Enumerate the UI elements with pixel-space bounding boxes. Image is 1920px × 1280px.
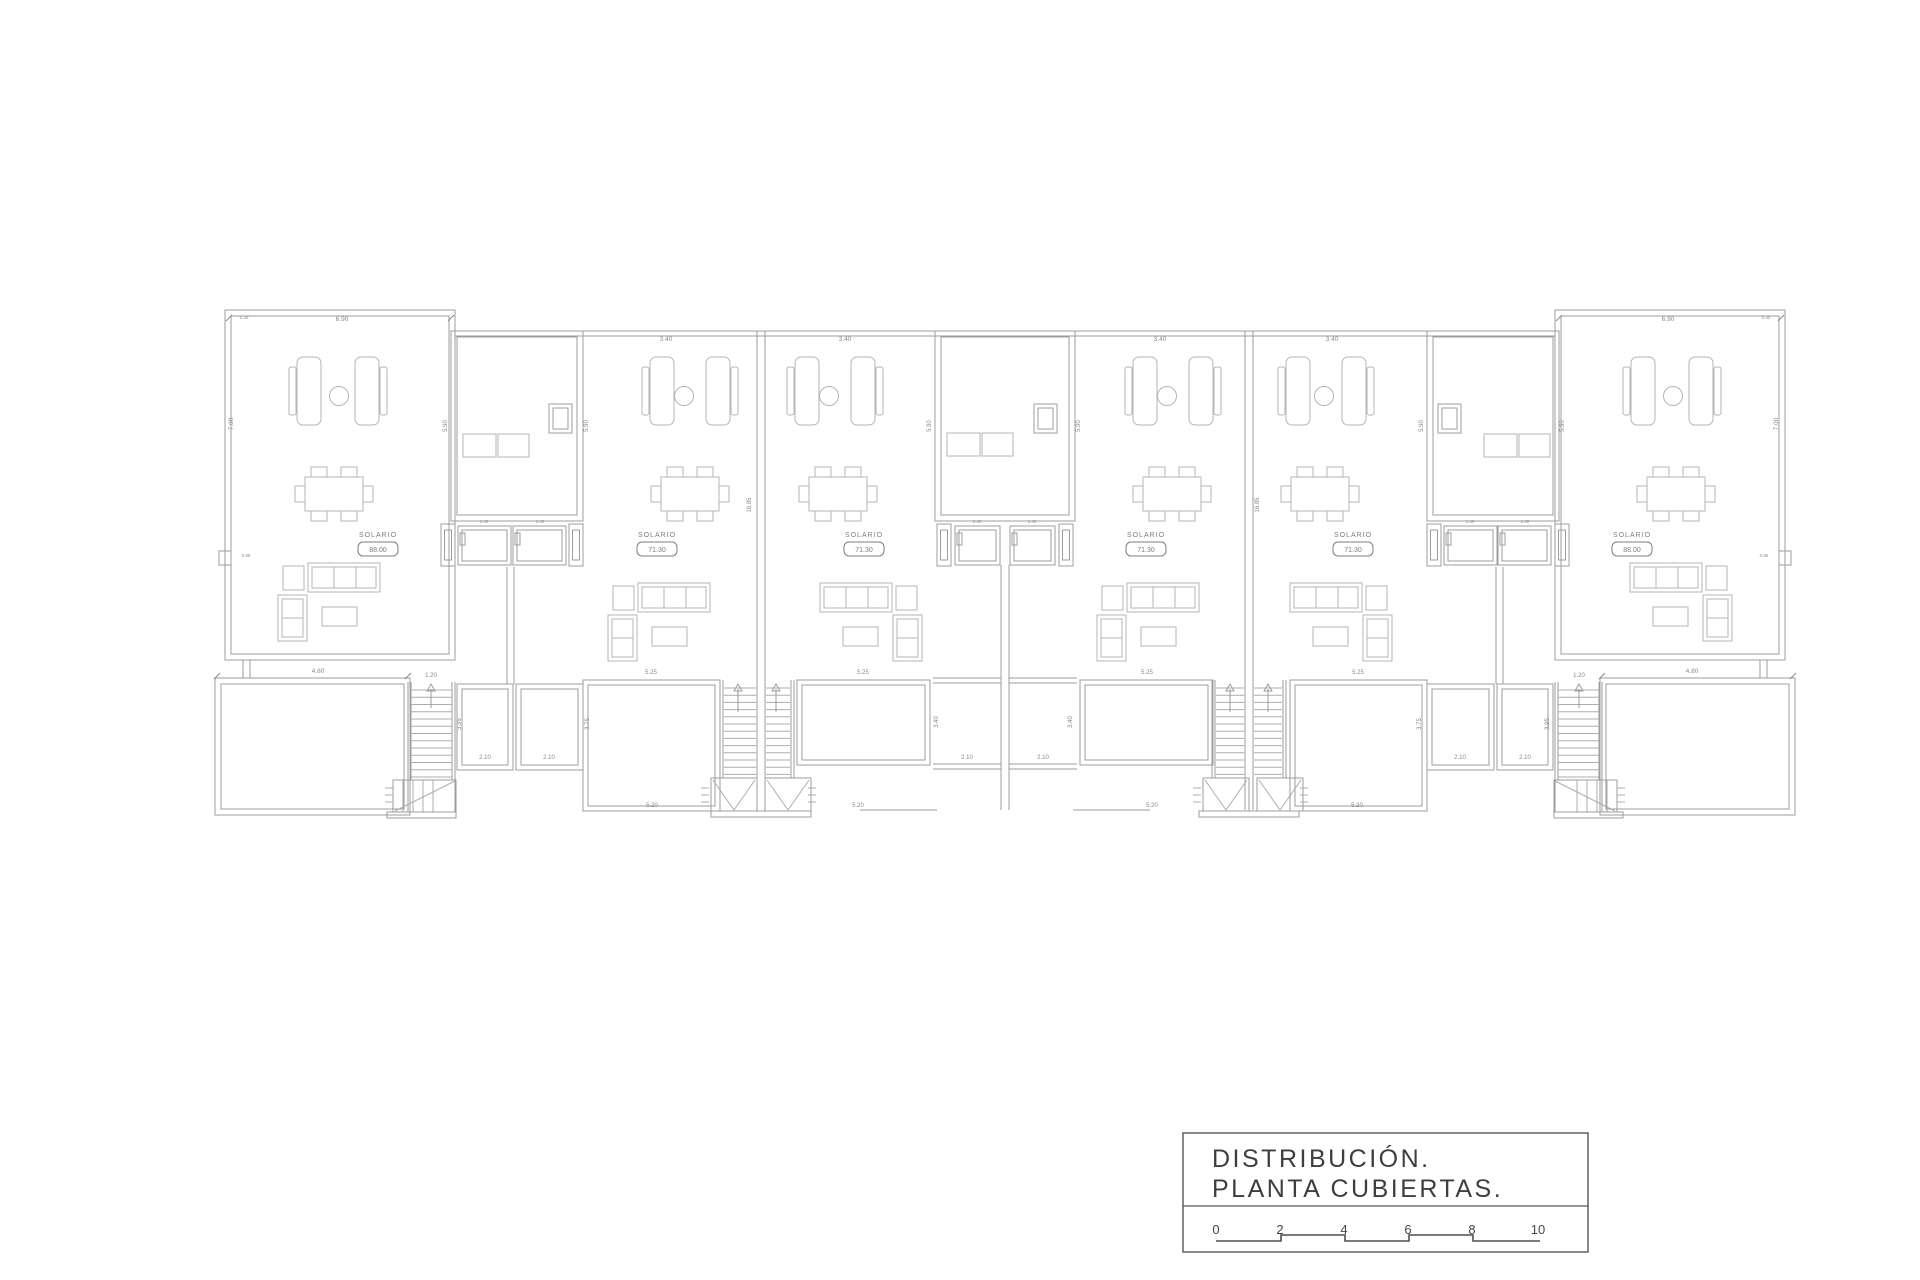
area-value: 71.30 <box>855 547 873 554</box>
dining-set <box>1133 467 1211 521</box>
lounger-back <box>1623 367 1630 415</box>
ottoman <box>896 586 917 610</box>
dim-label: 16.85 <box>1255 497 1261 513</box>
chair <box>1149 511 1165 521</box>
double-wall-outer <box>1427 331 1559 521</box>
double-wall-inner <box>1295 685 1422 806</box>
unit-c-solarium: 3.40SOLARIO71.30 <box>787 336 922 661</box>
chimney-planter <box>937 524 951 566</box>
solario-label: SOLARIO71.30 <box>1333 532 1373 556</box>
stair-landing <box>1203 778 1249 811</box>
ottoman <box>283 566 304 590</box>
dim-label: 0.30 <box>1762 315 1771 320</box>
dim-label: 2.10 <box>1454 755 1466 761</box>
stair-diagonal <box>734 780 755 810</box>
sun-lounger <box>1342 357 1374 425</box>
lounger-back <box>1714 367 1721 415</box>
scale-tick-label: 0 <box>1212 1222 1219 1237</box>
chair <box>815 467 831 477</box>
chair <box>1683 467 1699 477</box>
dim-label: 3.95 <box>1545 718 1551 730</box>
dining-table <box>1143 477 1201 511</box>
skylight-box <box>1438 404 1461 433</box>
coffee-table <box>1653 607 1688 626</box>
stair-base <box>711 811 811 817</box>
center-room: 1.401.405.905.90 <box>927 331 1082 566</box>
chair <box>295 486 305 502</box>
lounger-back <box>642 367 649 415</box>
dining-table <box>1647 477 1705 511</box>
chair <box>697 511 713 521</box>
dim-label: 5.25 <box>645 670 657 676</box>
dim-label: 2.10 <box>961 755 973 761</box>
solario-label: SOLARIO71.30 <box>1126 532 1166 556</box>
double-wall-outer <box>215 678 410 815</box>
dim-label: 3.40 <box>1068 716 1074 728</box>
unit-b-solarium: 3.40SOLARIO71.30 <box>608 336 738 661</box>
double-wall-inner <box>521 689 578 765</box>
stair-diagonal <box>1205 780 1226 810</box>
chair <box>1327 467 1343 477</box>
lounger-back <box>787 367 794 415</box>
table-circle <box>675 387 694 406</box>
lounger-body <box>1133 357 1157 425</box>
dim-label: 1.40 <box>1028 519 1037 524</box>
area-value: 71.30 <box>1344 547 1362 554</box>
table-circle <box>1158 387 1177 406</box>
chimney-planter <box>1555 524 1569 566</box>
chair <box>667 511 683 521</box>
sun-lounger <box>851 357 883 425</box>
dining-set <box>651 467 729 521</box>
sofa-seat <box>824 587 888 608</box>
lower-roof-band: 4.801.203.952.102.103.755.255.205.255.20… <box>214 668 1796 818</box>
daybed-right <box>1519 434 1550 457</box>
double-wall-outer <box>1290 680 1427 811</box>
double-wall-outer <box>1080 680 1213 765</box>
solario-text: SOLARIO <box>359 532 397 539</box>
double-wall-inner <box>231 316 449 654</box>
dim-label: 1.40 <box>1521 519 1530 524</box>
hatch-inner <box>1014 530 1051 561</box>
double-wall-inner <box>941 337 1069 515</box>
ottoman <box>1706 566 1727 590</box>
lounger-body <box>1631 357 1655 425</box>
lounger-back <box>289 367 296 415</box>
skylight-box <box>1034 404 1057 433</box>
chair <box>311 511 327 521</box>
box-inner <box>553 408 568 429</box>
dim-label: 2.10 <box>1037 755 1049 761</box>
dim-label: 3.40 <box>934 716 940 728</box>
lounger-back <box>1367 367 1374 415</box>
dim-label: 5.90 <box>927 420 933 432</box>
ottoman <box>1102 586 1123 610</box>
chair <box>1349 486 1359 502</box>
sofa-cluster <box>278 563 380 641</box>
dim-label: 1.40 <box>480 519 489 524</box>
chair <box>341 511 357 521</box>
roof-hatch <box>458 526 511 565</box>
lounger-body <box>1342 357 1366 425</box>
dim-label: 5.20 <box>1351 803 1363 809</box>
dim-label: 1.20 <box>1573 673 1585 679</box>
lounger-body <box>1189 357 1213 425</box>
chair <box>667 467 683 477</box>
daybed-left <box>1484 434 1517 457</box>
dim-label: 2.10 <box>479 755 491 761</box>
chair <box>1297 467 1313 477</box>
dim-label: 3.40 <box>839 336 852 343</box>
table-circle <box>820 387 839 406</box>
unit-e-solarium: 3.40SOLARIO71.30 <box>1278 336 1392 661</box>
sun-lounger <box>1189 357 1221 425</box>
unit-d-solarium: 3.40SOLARIO71.30 <box>1097 336 1221 661</box>
planter-inner <box>1559 530 1566 560</box>
area-value: 71.30 <box>1137 547 1155 554</box>
solario-label: SOLARIO71.30 <box>637 532 677 556</box>
double-wall-inner <box>802 685 925 760</box>
dining-table <box>661 477 719 511</box>
chimney-planter <box>569 524 583 566</box>
chair <box>719 486 729 502</box>
chimney-planter <box>1059 524 1073 566</box>
dim-label: 5.90 <box>1419 420 1425 432</box>
dining-set <box>1637 467 1715 521</box>
skylight-box <box>549 404 572 433</box>
chair <box>1683 511 1699 521</box>
dim-label: 6.90 <box>1662 316 1675 323</box>
title-block: DISTRIBUCIÓN.PLANTA CUBIERTAS.0246810 <box>1183 1133 1588 1252</box>
solario-text: SOLARIO <box>1127 532 1165 539</box>
chair <box>815 511 831 521</box>
sun-lounger <box>706 357 738 425</box>
double-wall-outer <box>797 680 930 765</box>
double-wall-inner <box>1502 689 1548 765</box>
dining-table <box>809 477 867 511</box>
sofa-seat <box>1294 587 1358 608</box>
chair <box>845 467 861 477</box>
lounger-back <box>876 367 883 415</box>
dim-label: 5.20 <box>852 803 864 809</box>
hatch-outer <box>1444 526 1497 565</box>
lounger-back <box>1214 367 1221 415</box>
scale-bar: 0246810 <box>1212 1222 1545 1241</box>
ottoman <box>1366 586 1387 610</box>
box-inner <box>1442 408 1457 429</box>
planter-inner <box>941 530 948 560</box>
chair <box>363 486 373 502</box>
dining-set <box>1281 467 1359 521</box>
dim-label: 1.20 <box>425 673 437 679</box>
sofa-seat <box>1634 567 1698 588</box>
sofa-cluster <box>608 583 710 661</box>
sun-lounger <box>1278 357 1310 425</box>
solario-label: SOLARIO88.00 <box>1612 532 1652 556</box>
double-wall-inner <box>221 684 404 809</box>
solario-label: SOLARIO71.30 <box>844 532 884 556</box>
hatch-inner <box>517 530 562 561</box>
planter-inner <box>1063 530 1070 560</box>
dim-label: 5.20 <box>646 803 658 809</box>
sofa-cluster <box>820 583 922 661</box>
daybed-left <box>463 434 496 457</box>
unit-e-room: 1.401.405.905.90 <box>1419 331 1569 566</box>
hatch-inner <box>462 530 507 561</box>
coffee-table <box>322 607 357 626</box>
chair <box>1327 511 1343 521</box>
dim-label: 0.30 <box>240 315 249 320</box>
lounger-body <box>355 357 379 425</box>
double-wall-outer <box>935 331 1075 521</box>
double-wall-inner <box>457 337 577 515</box>
table-circle <box>1315 387 1334 406</box>
double-wall-inner <box>1606 684 1789 809</box>
sun-lounger <box>355 357 387 425</box>
dim-label: 5.90 <box>584 420 590 432</box>
sun-lounger <box>1689 357 1721 425</box>
solario-label: SOLARIO88.00 <box>358 532 398 556</box>
hatch-inner <box>1448 530 1493 561</box>
sofa-seat <box>312 567 376 588</box>
dim-label: 6.90 <box>336 316 349 323</box>
hatch-outer <box>1498 526 1551 565</box>
roof-hatch <box>513 526 566 565</box>
stair-left: 1.203.95 <box>385 673 463 818</box>
table-circle <box>1664 387 1683 406</box>
area-value: 88.00 <box>1623 547 1641 554</box>
chair <box>845 511 861 521</box>
floor-plan-canvas: SOLARIO88.006.907.000.300.951.401.405.90… <box>0 0 1920 1280</box>
stair-diagonal <box>788 780 809 810</box>
daybed <box>1484 434 1550 457</box>
chair <box>1653 511 1669 521</box>
stair-base <box>1199 811 1299 817</box>
hatch-inner <box>959 530 996 561</box>
sun-lounger <box>1623 357 1655 425</box>
unit-b-room: 1.401.405.905.90 <box>441 331 590 566</box>
roof-hatch <box>1444 526 1497 565</box>
lounger-body <box>650 357 674 425</box>
scale-bar-line <box>1216 1235 1540 1241</box>
box-inner <box>1038 408 1053 429</box>
unit-a-solarium: SOLARIO88.006.907.000.300.95 <box>219 310 455 660</box>
dim-label: 5.25 <box>1352 670 1364 676</box>
chair <box>341 467 357 477</box>
hatch-inner <box>1502 530 1547 561</box>
chair <box>1133 486 1143 502</box>
ottoman <box>613 586 634 610</box>
chair <box>697 467 713 477</box>
roof-floor-plan: SOLARIO88.006.907.000.300.951.401.405.90… <box>214 310 1796 818</box>
dim-label: 4.80 <box>1686 668 1699 675</box>
coffee-table <box>1141 627 1176 646</box>
stair-right: 1.203.95 <box>1545 673 1625 818</box>
planter-inner <box>573 530 580 560</box>
roof-hatch <box>1010 526 1055 565</box>
stair-landing <box>765 778 811 811</box>
chair <box>867 486 877 502</box>
lounger-body <box>297 357 321 425</box>
dim-label: 3.40 <box>660 336 673 343</box>
chair <box>1653 467 1669 477</box>
sofa-seat <box>642 587 706 608</box>
lounger-back <box>380 367 387 415</box>
sofa-cluster <box>1630 563 1732 641</box>
sofa-seat <box>1131 587 1195 608</box>
double-wall-inner <box>1432 689 1489 765</box>
dim-label: 5.90 <box>443 420 449 432</box>
coffee-table <box>652 627 687 646</box>
stair-diagonal <box>1259 780 1280 810</box>
dim-label: 1.40 <box>1466 519 1475 524</box>
sun-lounger <box>289 357 321 425</box>
dim-label: 7.00 <box>228 417 235 430</box>
chimney-planter <box>441 524 455 566</box>
daybed-right <box>498 434 529 457</box>
dining-table <box>1291 477 1349 511</box>
sofa-cluster <box>1097 583 1199 661</box>
hatch-outer <box>458 526 511 565</box>
daybed-right <box>982 433 1013 456</box>
stair-double-right <box>1193 680 1308 817</box>
dim-label: 5.25 <box>857 670 869 676</box>
dim-label: 2.10 <box>1519 755 1531 761</box>
chair <box>311 467 327 477</box>
dim-label: 5.20 <box>1146 803 1158 809</box>
area-value: 71.30 <box>648 547 666 554</box>
solario-text: SOLARIO <box>845 532 883 539</box>
chair <box>1179 511 1195 521</box>
dim-label: 5.25 <box>1141 670 1153 676</box>
double-wall-inner <box>1561 316 1779 654</box>
sun-lounger <box>787 357 819 425</box>
dining-set <box>295 467 373 521</box>
roof-hatch <box>1498 526 1551 565</box>
scale-tick-label: 10 <box>1531 1222 1545 1237</box>
area-value: 88.00 <box>369 547 387 554</box>
planter-inner <box>1431 530 1438 560</box>
chimney-planter <box>1427 524 1441 566</box>
drawing-title-line2: PLANTA CUBIERTAS. <box>1212 1175 1503 1203</box>
sofa-cluster <box>1290 583 1392 661</box>
lounger-body <box>795 357 819 425</box>
table-circle <box>330 387 349 406</box>
solario-text: SOLARIO <box>1613 532 1651 539</box>
dim-label: 1.40 <box>536 519 545 524</box>
double-wall-inner <box>588 685 715 806</box>
double-wall-outer <box>1600 678 1795 815</box>
chair <box>1201 486 1211 502</box>
hatch-outer <box>513 526 566 565</box>
lounger-body <box>1689 357 1713 425</box>
lounger-back <box>1125 367 1132 415</box>
daybed-left <box>947 433 980 456</box>
dim-label: 3.40 <box>1154 336 1167 343</box>
lounger-back <box>731 367 738 415</box>
lounger-back <box>1278 367 1285 415</box>
stair-diagonal <box>767 780 788 810</box>
chair <box>1179 467 1195 477</box>
dining-set <box>799 467 877 521</box>
stair-diagonal <box>1226 780 1247 810</box>
dim-label: 0.95 <box>242 553 251 558</box>
solario-text: SOLARIO <box>1334 532 1372 539</box>
chair <box>651 486 661 502</box>
dim-label: 7.00 <box>1773 417 1780 430</box>
dim-label: 2.10 <box>543 755 555 761</box>
dim-label: 16.85 <box>747 497 753 513</box>
stair-double-left <box>701 680 816 817</box>
roof-hatch <box>955 526 1000 565</box>
drawing-title-line1: DISTRIBUCIÓN. <box>1212 1144 1431 1173</box>
lounger-body <box>706 357 730 425</box>
dim-label: 3.75 <box>1417 718 1423 730</box>
dim-label: 3.40 <box>1326 336 1339 343</box>
chair <box>799 486 809 502</box>
sun-lounger <box>1125 357 1157 425</box>
stair-landing <box>711 778 757 811</box>
chair <box>1637 486 1647 502</box>
chair <box>1149 467 1165 477</box>
double-wall-inner <box>1085 685 1208 760</box>
double-wall-inner <box>1433 337 1553 515</box>
chair <box>1281 486 1291 502</box>
stair-diagonal <box>713 780 734 810</box>
daybed <box>463 434 529 457</box>
double-wall-outer <box>451 331 583 521</box>
lounger-body <box>851 357 875 425</box>
chair <box>1705 486 1715 502</box>
coffee-table <box>1313 627 1348 646</box>
dining-table <box>305 477 363 511</box>
double-wall-inner <box>462 689 508 765</box>
lounger-body <box>1286 357 1310 425</box>
planter-inner <box>445 530 452 560</box>
dim-label: 0.95 <box>1760 553 1769 558</box>
solario-text: SOLARIO <box>638 532 676 539</box>
unit-f-solarium: SOLARIO88.006.907.000.300.95 <box>1555 310 1791 660</box>
dim-label: 5.90 <box>1076 420 1082 432</box>
double-wall-outer <box>583 680 720 811</box>
sun-lounger <box>642 357 674 425</box>
chair <box>1297 511 1313 521</box>
dim-label: 4.80 <box>312 668 325 675</box>
drawing-sheet: SOLARIO88.006.907.000.300.951.401.405.90… <box>0 0 1920 1280</box>
dim-label: 1.40 <box>973 519 982 524</box>
coffee-table <box>843 627 878 646</box>
daybed <box>947 433 1013 456</box>
